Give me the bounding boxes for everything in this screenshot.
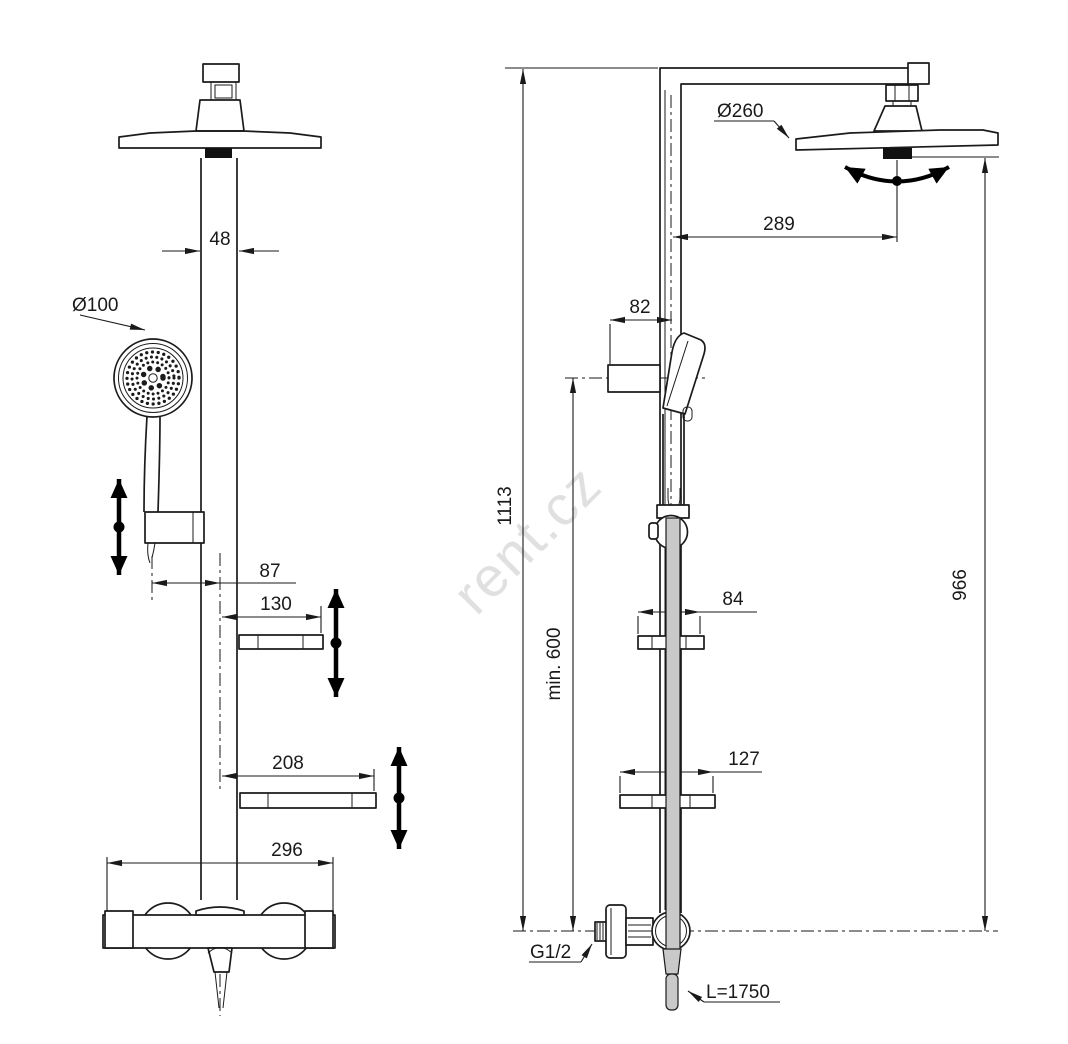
- lower-shelf-front: [240, 793, 376, 808]
- dim-82-label: 82: [629, 297, 650, 318]
- shower-hose: [663, 518, 681, 1010]
- dim-d260-label: Ø260: [717, 101, 763, 122]
- dim-column-height: 966: [912, 157, 999, 931]
- front-view: 48 87: [72, 64, 405, 1016]
- upper-shelf-front: [239, 635, 323, 649]
- dim-g12-label: G1/2: [530, 942, 571, 963]
- dim-127-label: 127: [728, 749, 760, 770]
- connection-flange: [606, 905, 626, 958]
- dim-lower-shelf-width: 208: [222, 753, 374, 791]
- shower-system-drawing: rent.cz 48: [0, 0, 1068, 1044]
- overhead-shower-side: [796, 85, 998, 242]
- dim-48-label: 48: [209, 229, 230, 250]
- dim-296-label: 296: [271, 840, 303, 861]
- swivel-nut: [886, 85, 918, 101]
- dim-130-label: 130: [260, 594, 292, 615]
- dim-84-label: 84: [722, 589, 744, 610]
- head-disc-side: [796, 130, 998, 150]
- mixer-body: [103, 915, 335, 948]
- dim-lower-shelf-depth: 127: [620, 749, 762, 793]
- dim-289-label: 289: [763, 214, 795, 235]
- dim-87-label: 87: [259, 561, 280, 582]
- mixer-inlet-collar: [196, 907, 244, 915]
- label-connection-thread: G1/2: [529, 942, 592, 963]
- head-cone-mount: [874, 106, 922, 131]
- dim-mixer-width: 296: [107, 840, 333, 911]
- dim-pipe-width: 48: [162, 229, 279, 251]
- shower-column-side: [660, 63, 929, 913]
- upper-shelf-adjust-arrow: [331, 589, 342, 697]
- hand-shower-front: [114, 339, 204, 563]
- nozzle-petals: [143, 368, 163, 388]
- head-connector-side: [883, 148, 912, 159]
- thermostatic-mixer: [103, 903, 335, 1008]
- dim-upper-shelf-depth: 84: [638, 589, 757, 634]
- handle-left-edge: [144, 416, 147, 512]
- mixer-spout: [208, 948, 232, 972]
- dim-966-label: 966: [950, 569, 971, 601]
- watermark: rent.cz: [440, 452, 613, 625]
- dim-208-label: 208: [272, 753, 304, 774]
- nozzle-ring-outer: [127, 352, 179, 404]
- label-hose-length: L=1750: [688, 982, 780, 1003]
- dim-1113-label: 1113: [495, 486, 516, 525]
- hand-shower-holder: [145, 512, 204, 543]
- dim-hand-shower-offset: 87: [152, 561, 296, 583]
- dim-d100-label: Ø100: [72, 295, 118, 316]
- wall-bracket-side: [608, 365, 660, 392]
- label-hand-shower-diameter: Ø100: [72, 295, 145, 330]
- dim-bracket-depth: 82: [610, 297, 672, 364]
- lower-shelf-adjust-arrow: [394, 747, 405, 849]
- arm-end-cap: [908, 63, 929, 84]
- height-adjust-arrow: [114, 479, 125, 575]
- hand-shower-head-side: [663, 333, 705, 414]
- holder-knob-tab: [649, 523, 658, 539]
- technical-drawing-page: rent.cz 48: [0, 0, 1068, 1044]
- label-head-diameter: Ø260: [714, 101, 789, 138]
- handle-right-edge: [158, 416, 160, 512]
- dim-l1750-label: L=1750: [706, 982, 770, 1003]
- head-connector: [205, 148, 232, 158]
- dim-min600-label: min. 600: [544, 628, 565, 701]
- dim-head-reach: 289: [673, 214, 897, 237]
